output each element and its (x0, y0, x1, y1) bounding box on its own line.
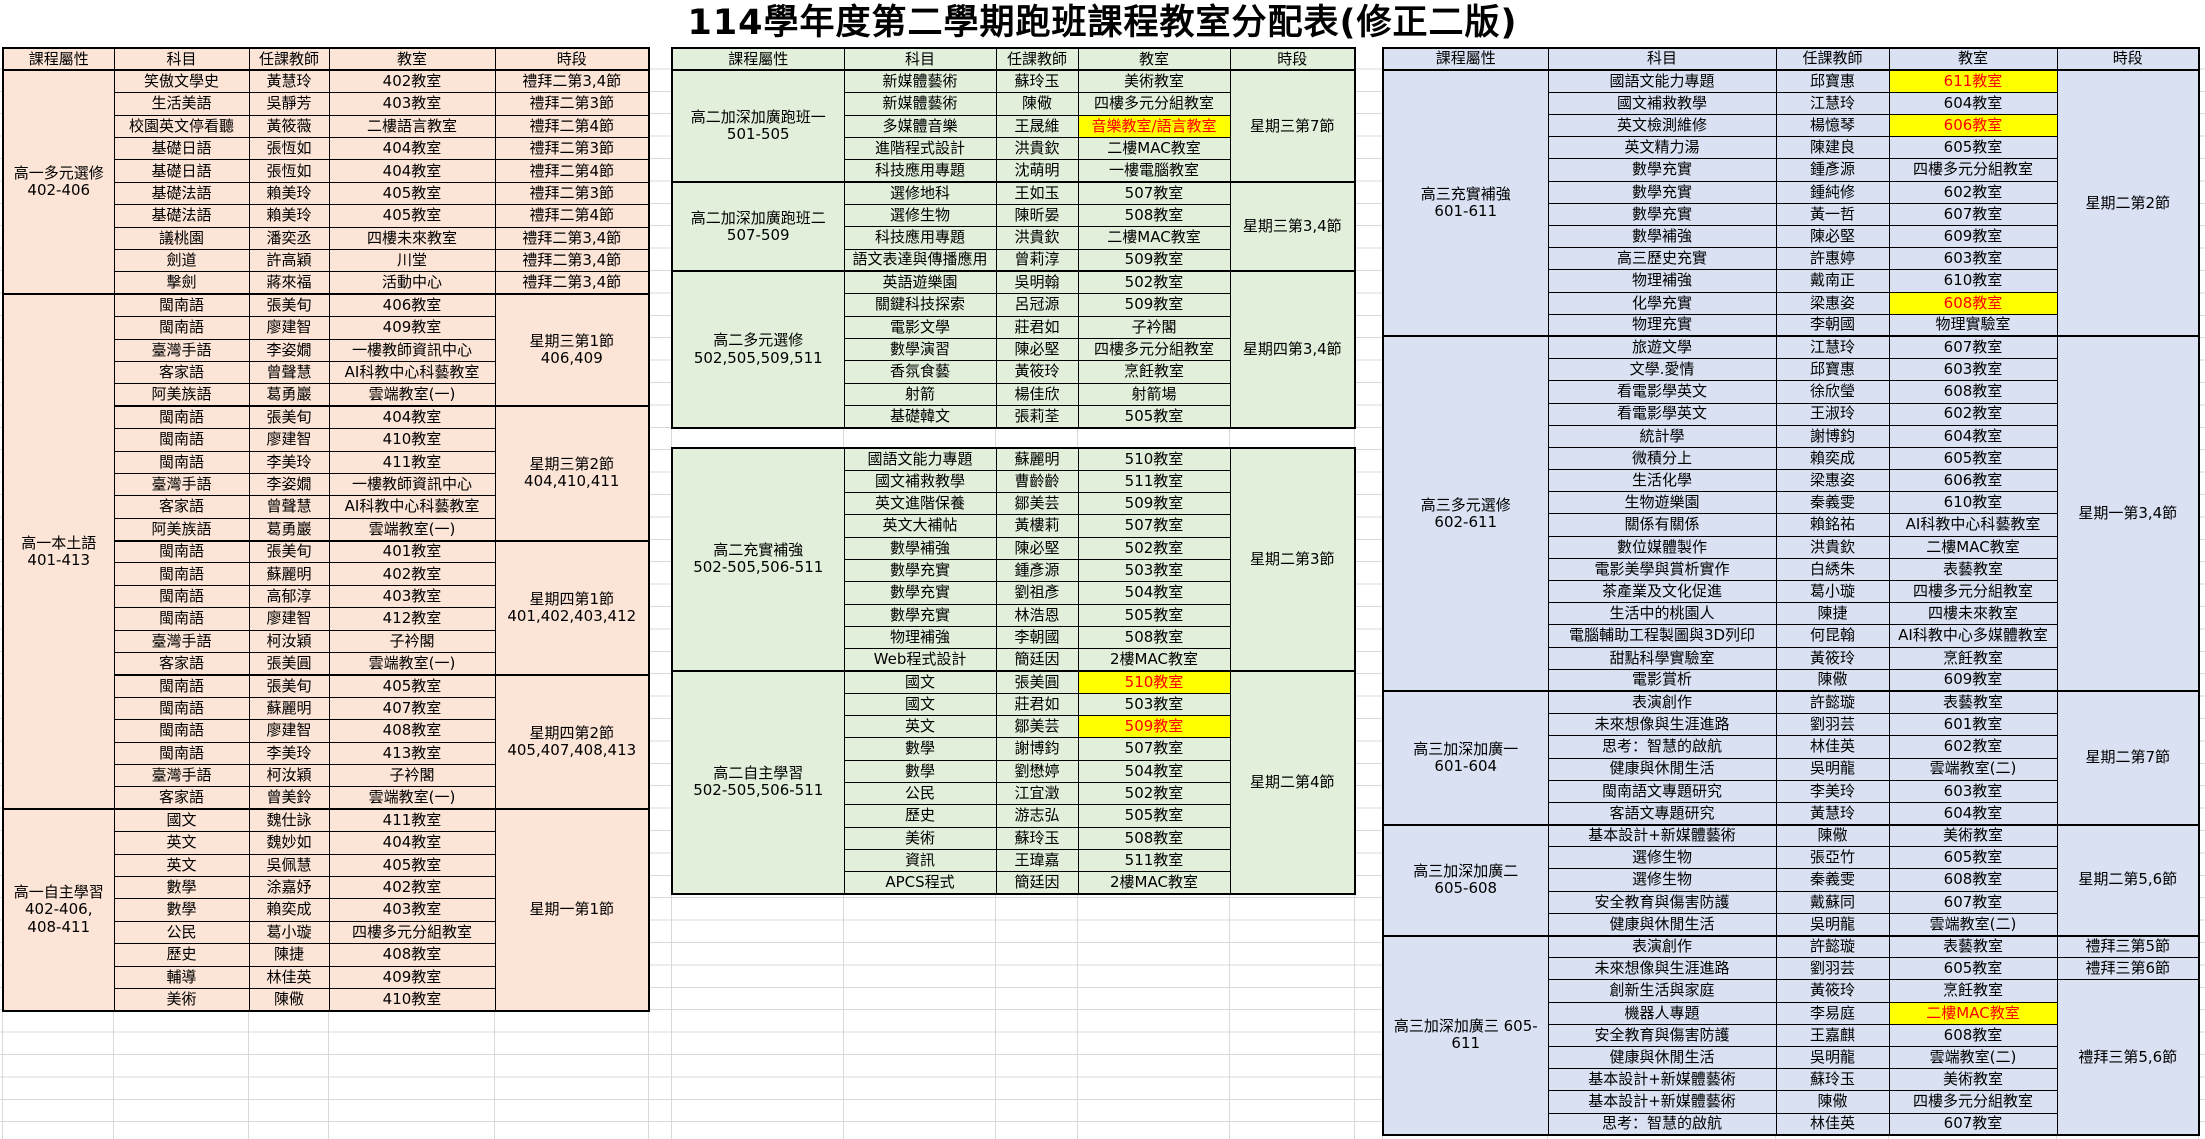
cell-text-line: 星期一第1節 (497, 901, 648, 918)
subject-cell: 數學 (114, 876, 249, 898)
teacher-cell: 曹齡齡 (996, 470, 1078, 492)
room-cell: 509教室 (1078, 493, 1230, 515)
subject-cell: 健康與休閒生活 (1548, 1046, 1776, 1068)
teacher-cell: 戴南正 (1776, 270, 1889, 292)
subject-cell: 香氛食藝 (844, 361, 996, 383)
room-cell: 403教室 (329, 585, 495, 607)
room-cell: 404教室 (329, 160, 495, 182)
room-cell: 604教室 (1889, 92, 2057, 114)
subject-cell: 校園英文停看聽 (114, 115, 249, 137)
teacher-cell: 黃筱玲 (1776, 647, 1889, 669)
cell-text-line: 高二自主學習 (674, 765, 843, 782)
grade1-course-table-section: 課程屬性科目任課教師教室時段高一多元選修402-406笑傲文學史黃慧玲402教室… (2, 47, 650, 1012)
cell-text-line: 星期二第3節 (1232, 551, 1354, 568)
subject-cell: 數學充實 (844, 582, 996, 604)
room-cell: 607教室 (1889, 891, 2057, 913)
room-cell: 607教室 (1889, 203, 2057, 225)
cell-text-line: 601-604 (1385, 758, 1547, 775)
group-label-cell: 高一本土語401-413 (3, 294, 114, 809)
room-cell: 一樓電腦教室 (1078, 160, 1230, 182)
room-cell: 411教室 (329, 451, 495, 473)
subject-cell: 臺灣手語 (114, 765, 249, 787)
subject-cell: 國文 (844, 693, 996, 715)
teacher-cell: 林浩恩 (996, 604, 1078, 626)
room-cell: 608教室 (1889, 381, 2057, 403)
teacher-cell: 張美圓 (249, 653, 329, 675)
teacher-cell: 鄒美芸 (996, 716, 1078, 738)
room-cell: 610教室 (1889, 270, 2057, 292)
subject-cell: 射箭 (844, 383, 996, 405)
subject-cell: 思考：智慧的啟航 (1548, 736, 1776, 758)
subject-cell: 旅遊文學 (1548, 336, 1776, 358)
teacher-cell: 王嘉麒 (1776, 1024, 1889, 1046)
subject-cell: 歷史 (844, 805, 996, 827)
column-header: 任課教師 (249, 48, 329, 70)
cell-text-line: 高二加深加廣跑班二 (674, 210, 843, 227)
teacher-cell: 張美圓 (996, 671, 1078, 693)
grade2b-table: 高二充實補強502-505,506-511國語文能力專題蘇麗明510教室星期二第… (671, 447, 1356, 895)
room-cell: 611教室 (1889, 70, 2057, 92)
room-cell: 608教室 (1889, 1024, 2057, 1046)
time-slot-cell: 禮拜二第3節 (495, 138, 649, 160)
column-header: 科目 (1548, 48, 1776, 70)
room-cell: 美術教室 (1078, 70, 1230, 92)
room-cell: 404教室 (329, 832, 495, 854)
room-cell: 402教室 (329, 563, 495, 585)
room-cell: 510教室 (1078, 671, 1230, 693)
subject-cell: 新媒體藝術 (844, 93, 996, 115)
subject-cell: 基礎韓文 (844, 406, 996, 428)
subject-cell: 數學 (844, 760, 996, 782)
column-header: 教室 (329, 48, 495, 70)
time-slot-cell: 禮拜二第3,4節 (495, 250, 649, 272)
teacher-cell: 江慧玲 (1776, 336, 1889, 358)
room-cell: 602教室 (1889, 403, 2057, 425)
room-cell: 507教室 (1078, 738, 1230, 760)
cell-text-line: 高三多元選修 (1385, 497, 1547, 514)
subject-cell: 數學補強 (844, 537, 996, 559)
teacher-cell: 廖建智 (249, 720, 329, 742)
time-slot-cell: 禮拜二第3節 (495, 182, 649, 204)
grade3-table: 課程屬性科目任課教師教室時段高三充實補強601-611國語文能力專題邱寶惠611… (1382, 47, 2200, 1136)
time-slot-cell: 禮拜二第4節 (495, 115, 649, 137)
teacher-cell: 廖建智 (249, 429, 329, 451)
teacher-cell: 秦義雯 (1776, 492, 1889, 514)
time-slot-cell: 星期二第2節 (2057, 70, 2199, 336)
cell-text-line: 高一自主學習 (5, 884, 113, 901)
teacher-cell: 陳昕晏 (996, 204, 1078, 226)
subject-cell: 表演創作 (1548, 691, 1776, 713)
subject-cell: 笑傲文學史 (114, 70, 249, 92)
teacher-cell: 謝博鈞 (1776, 425, 1889, 447)
teacher-cell: 黃筱玲 (996, 361, 1078, 383)
room-cell: AI科教中心多媒體教室 (1889, 625, 2057, 647)
room-cell: 606教室 (1889, 470, 2057, 492)
teacher-cell: 柯汝穎 (249, 765, 329, 787)
time-slot-cell: 星期三第7節 (1230, 70, 1355, 182)
time-slot-cell: 星期三第3,4節 (1230, 182, 1355, 271)
room-cell: 406教室 (329, 294, 495, 316)
subject-cell: 閩南語 (114, 697, 249, 719)
cell-text-line: 高三加深加廣三 605- (1385, 1018, 1547, 1035)
teacher-cell: 李朝國 (996, 626, 1078, 648)
subject-cell: 基礎法語 (114, 182, 249, 204)
time-slot-cell: 禮拜三第6節 (2057, 958, 2199, 980)
subject-cell: 基本設計+新媒體藝術 (1548, 1091, 1776, 1113)
teacher-cell: 林佳英 (249, 966, 329, 988)
cell-text-line: 星期一第3,4節 (2059, 505, 2198, 522)
subject-cell: 選修生物 (844, 204, 996, 226)
subject-cell: 數學補強 (1548, 226, 1776, 248)
room-cell: 603教室 (1889, 780, 2057, 802)
teacher-cell: 曾聲慧 (249, 361, 329, 383)
room-cell: 子衿閣 (329, 765, 495, 787)
cell-text-line: 禮拜二第3節 (497, 95, 648, 112)
subject-cell: 閩南語 (114, 451, 249, 473)
room-cell: 表藝教室 (1889, 558, 2057, 580)
room-cell: 502教室 (1078, 537, 1230, 559)
time-slot-cell: 星期三第1節406,409 (495, 294, 649, 406)
room-cell: 603教室 (1889, 359, 2057, 381)
room-cell: 四樓多元分組教室 (1889, 581, 2057, 603)
time-slot-cell: 星期四第3,4節 (1230, 271, 1355, 427)
subject-cell: 電影文學 (844, 316, 996, 338)
subject-cell: 創新生活與家庭 (1548, 980, 1776, 1002)
column-header: 課程屬性 (672, 48, 844, 70)
teacher-cell: 鍾彥源 (996, 559, 1078, 581)
teacher-cell: 曾美鈴 (249, 787, 329, 809)
teacher-cell: 魏仕詠 (249, 809, 329, 831)
subject-cell: 英文精力湯 (1548, 137, 1776, 159)
teacher-cell: 陳儆 (996, 93, 1078, 115)
teacher-cell: 洪貴欽 (996, 227, 1078, 249)
time-slot-cell: 星期四第1節401,402,403,412 (495, 541, 649, 675)
subject-cell: 臺灣手語 (114, 473, 249, 495)
room-cell: AI科教中心科藝教室 (329, 496, 495, 518)
teacher-cell: 涂嘉妤 (249, 876, 329, 898)
cell-text-line: 401-413 (5, 552, 113, 569)
room-cell: 射箭場 (1078, 383, 1230, 405)
cell-text-line: 星期四第1節 (497, 591, 648, 608)
cell-text-line: 507-509 (674, 227, 843, 244)
column-header: 科目 (844, 48, 996, 70)
teacher-cell: 張美旬 (249, 294, 329, 316)
group-label-cell: 高二加深加廣跑班二507-509 (672, 182, 844, 271)
room-cell: 505教室 (1078, 604, 1230, 626)
room-cell: 烹飪教室 (1889, 647, 2057, 669)
teacher-cell: 張美旬 (249, 541, 329, 563)
room-cell: 405教室 (329, 854, 495, 876)
room-cell: 605教室 (1889, 958, 2057, 980)
group-label-cell: 高二多元選修502,505,509,511 (672, 271, 844, 427)
room-cell: 604教室 (1889, 425, 2057, 447)
column-header: 課程屬性 (3, 48, 114, 70)
teacher-cell: 呂冠源 (996, 294, 1078, 316)
group-label-cell: 高三加深加廣一601-604 (1383, 691, 1548, 824)
teacher-cell: 賴銘祐 (1776, 514, 1889, 536)
room-cell: 602教室 (1889, 181, 2057, 203)
room-cell: 雲端教室(一) (329, 653, 495, 675)
subject-cell: 英文檢測維修 (1548, 115, 1776, 137)
subject-cell: 美術 (844, 827, 996, 849)
page-title: 114學年度第二學期跑班課程教室分配表(修正二版) (0, 1, 2205, 46)
room-cell: 607教室 (1889, 336, 2057, 358)
subject-cell: 閩南語 (114, 406, 249, 428)
teacher-cell: 黃慧玲 (1776, 802, 1889, 824)
time-slot-cell: 禮拜二第3,4節 (495, 70, 649, 92)
room-cell: 508教室 (1078, 204, 1230, 226)
subject-cell: 數學充實 (1548, 159, 1776, 181)
cell-text-line: 高三加深加廣二 (1385, 863, 1547, 880)
subject-cell: 多媒體音樂 (844, 115, 996, 137)
room-cell: AI科教中心科藝教室 (1889, 514, 2057, 536)
room-cell: 507教室 (1078, 182, 1230, 204)
teacher-cell: 王晟維 (996, 115, 1078, 137)
teacher-cell: 簡廷因 (996, 649, 1078, 671)
subject-cell: 國語文能力專題 (844, 448, 996, 470)
teacher-cell: 許懿璇 (1776, 691, 1889, 713)
teacher-cell: 潘奕丞 (249, 227, 329, 249)
subject-cell: 數學充實 (1548, 203, 1776, 225)
room-cell: 603教室 (1889, 248, 2057, 270)
subject-cell: Web程式設計 (844, 649, 996, 671)
teacher-cell: 蘇玲玉 (996, 827, 1078, 849)
subject-cell: 數位媒體製作 (1548, 536, 1776, 558)
cell-text-line: 611 (1385, 1035, 1547, 1052)
time-slot-cell: 星期一第3,4節 (2057, 336, 2199, 691)
room-cell: 508教室 (1078, 827, 1230, 849)
subject-cell: 英文大補帖 (844, 515, 996, 537)
subject-cell: 閩南語文專題研究 (1548, 780, 1776, 802)
column-header: 時段 (1230, 48, 1355, 70)
time-slot-cell: 星期二第7節 (2057, 691, 2199, 824)
teacher-cell: 蘇麗明 (249, 563, 329, 585)
room-cell: 405教室 (329, 205, 495, 227)
room-cell: 602教室 (1889, 736, 2057, 758)
subject-cell: 電腦輔助工程製圖與3D列印 (1548, 625, 1776, 647)
teacher-cell: 江宜澂 (996, 782, 1078, 804)
subject-cell: 化學充實 (1548, 292, 1776, 314)
cell-text-line: 501-505 (674, 126, 843, 143)
teacher-cell: 鍾純修 (1776, 181, 1889, 203)
room-cell: 606教室 (1889, 115, 2057, 137)
subject-cell: 公民 (844, 782, 996, 804)
teacher-cell: 邱寶惠 (1776, 70, 1889, 92)
subject-cell: 國文 (844, 671, 996, 693)
teacher-cell: 陳儆 (249, 988, 329, 1010)
subject-cell: 歷史 (114, 944, 249, 966)
cell-text-line: 星期二第2節 (2059, 195, 2198, 212)
room-cell: 403教室 (329, 93, 495, 115)
subject-cell: 客家語 (114, 496, 249, 518)
room-cell: 605教室 (1889, 137, 2057, 159)
subject-cell: 英文 (114, 854, 249, 876)
teacher-cell: 葛勇巖 (249, 384, 329, 406)
subject-cell: 科技應用專題 (844, 227, 996, 249)
subject-cell: 電影賞析 (1548, 669, 1776, 691)
column-header: 教室 (1078, 48, 1230, 70)
subject-cell: 選修生物 (1548, 847, 1776, 869)
teacher-cell: 張恆如 (249, 138, 329, 160)
room-cell: 雲端教室(一) (329, 787, 495, 809)
subject-cell: 數學充實 (844, 604, 996, 626)
subject-cell: 科技應用專題 (844, 160, 996, 182)
teacher-cell: 陳儆 (1776, 825, 1889, 847)
cell-text-line: 404,410,411 (497, 473, 648, 490)
time-slot-cell: 星期三第2節404,410,411 (495, 406, 649, 540)
room-cell: 607教室 (1889, 1113, 2057, 1135)
room-cell: 511教室 (1078, 470, 1230, 492)
room-cell: 504教室 (1078, 582, 1230, 604)
column-header: 時段 (2057, 48, 2199, 70)
time-slot-cell: 禮拜二第3,4節 (495, 227, 649, 249)
teacher-cell: 賴美玲 (249, 205, 329, 227)
teacher-cell: 陳必堅 (996, 537, 1078, 559)
subject-cell: 數學 (114, 899, 249, 921)
teacher-cell: 謝博鈞 (996, 738, 1078, 760)
teacher-cell: 梁惠姿 (1776, 470, 1889, 492)
subject-cell: 阿美族語 (114, 384, 249, 406)
subject-cell: 美術 (114, 988, 249, 1010)
time-slot-cell: 星期一第1節 (495, 809, 649, 1011)
teacher-cell: 張亞竹 (1776, 847, 1889, 869)
group-label-cell: 高一自主學習402-406,408-411 (3, 809, 114, 1011)
subject-cell: 思考：智慧的啟航 (1548, 1113, 1776, 1135)
teacher-cell: 賴奕成 (1776, 447, 1889, 469)
room-cell: 509教室 (1078, 716, 1230, 738)
teacher-cell: 蘇玲玉 (1776, 1069, 1889, 1091)
room-cell: 511教室 (1078, 849, 1230, 871)
subject-cell: 高三歷史充實 (1548, 248, 1776, 270)
subject-cell: 閩南語 (114, 608, 249, 630)
subject-cell: 英文 (844, 716, 996, 738)
room-cell: 美術教室 (1889, 1069, 2057, 1091)
teacher-cell: 黃筱薇 (249, 115, 329, 137)
room-cell: 雲端教室(一) (329, 518, 495, 540)
group-label-cell: 高三加深加廣三 605-611 (1383, 936, 1548, 1136)
room-cell: 表藝教室 (1889, 691, 2057, 713)
time-slot-cell: 禮拜三第5,6節 (2057, 980, 2199, 1135)
cell-text-line: 星期四第2節 (497, 725, 648, 742)
subject-cell: 微積分上 (1548, 447, 1776, 469)
teacher-cell: 白綉朱 (1776, 558, 1889, 580)
teacher-cell: 秦義雯 (1776, 869, 1889, 891)
subject-cell: 表演創作 (1548, 936, 1776, 958)
teacher-cell: 許惠婷 (1776, 248, 1889, 270)
subject-cell: 客家語 (114, 361, 249, 383)
time-slot-cell: 禮拜三第5節 (2057, 936, 2199, 958)
teacher-cell: 江慧玲 (1776, 92, 1889, 114)
subject-cell: 阿美族語 (114, 518, 249, 540)
subject-cell: 健康與休閒生活 (1548, 758, 1776, 780)
room-cell: 605教室 (1889, 847, 2057, 869)
teacher-cell: 賴奕成 (249, 899, 329, 921)
subject-cell: 基本設計+新媒體藝術 (1548, 825, 1776, 847)
cell-text-line: 高一本土語 (5, 535, 113, 552)
subject-cell: 數學充實 (844, 559, 996, 581)
room-cell: 一樓教師資訊中心 (329, 473, 495, 495)
cell-text-line: 408-411 (5, 919, 113, 936)
room-cell: AI科教中心科藝教室 (329, 361, 495, 383)
column-header: 時段 (495, 48, 649, 70)
group-label-cell: 高一多元選修402-406 (3, 70, 114, 294)
teacher-cell: 曾莉淳 (996, 249, 1078, 271)
subject-cell: 關鍵科技探索 (844, 294, 996, 316)
time-slot-cell: 禮拜二第3,4節 (495, 272, 649, 294)
grade1-table: 課程屬性科目任課教師教室時段高一多元選修402-406笑傲文學史黃慧玲402教室… (2, 47, 650, 1012)
teacher-cell: 吳明龍 (1776, 1046, 1889, 1068)
cell-text-line: 禮拜二第3,4節 (497, 274, 648, 291)
teacher-cell: 梁惠姿 (1776, 292, 1889, 314)
room-cell: 四樓多元分組教室 (329, 921, 495, 943)
teacher-cell: 何昆翰 (1776, 625, 1889, 647)
teacher-cell: 賴美玲 (249, 182, 329, 204)
subject-cell: 英文進階保養 (844, 493, 996, 515)
teacher-cell: 葛小璇 (249, 921, 329, 943)
subject-cell: 基礎日語 (114, 160, 249, 182)
room-cell: 404教室 (329, 138, 495, 160)
teacher-cell: 李姿嫺 (249, 339, 329, 361)
room-cell: 美術教室 (1889, 825, 2057, 847)
room-cell: 610教室 (1889, 492, 2057, 514)
room-cell: 音樂教室/語言教室 (1078, 115, 1230, 137)
subject-cell: 安全教育與傷害防護 (1548, 891, 1776, 913)
subject-cell: 未來想像與生涯進路 (1548, 714, 1776, 736)
subject-cell: 基礎法語 (114, 205, 249, 227)
teacher-cell: 許高穎 (249, 250, 329, 272)
teacher-cell: 林佳英 (1776, 1113, 1889, 1135)
cell-text-line: 禮拜二第3節 (497, 185, 648, 202)
cell-text-line: 禮拜二第3節 (497, 140, 648, 157)
teacher-cell: 劉羽芸 (1776, 714, 1889, 736)
subject-cell: 國文補救教學 (844, 470, 996, 492)
cell-text-line: 星期二第7節 (2059, 749, 2198, 766)
subject-cell: 閩南語 (114, 563, 249, 585)
subject-cell: 物理補強 (844, 626, 996, 648)
subject-cell: 茶產業及文化促進 (1548, 581, 1776, 603)
cell-text-line: 401,402,403,412 (497, 608, 648, 625)
subject-cell: 英語遊樂園 (844, 271, 996, 293)
teacher-cell: 徐欣瑩 (1776, 381, 1889, 403)
room-cell: 503教室 (1078, 693, 1230, 715)
teacher-cell: 魏妙如 (249, 832, 329, 854)
room-cell: 雲端教室(二) (1889, 1046, 2057, 1068)
room-cell: 509教室 (1078, 294, 1230, 316)
room-cell: 雲端教室(一) (329, 384, 495, 406)
cell-text-line: 星期四第3,4節 (1232, 341, 1354, 358)
room-cell: 508教室 (1078, 626, 1230, 648)
subject-cell: 議桃園 (114, 227, 249, 249)
room-cell: 412教室 (329, 608, 495, 630)
cell-text-line: 禮拜三第5節 (2059, 938, 2198, 955)
room-cell: 川堂 (329, 250, 495, 272)
room-cell: 四樓多元分組教室 (1889, 1091, 2057, 1113)
column-header: 任課教師 (996, 48, 1078, 70)
room-cell: 411教室 (329, 809, 495, 831)
teacher-cell: 廖建智 (249, 608, 329, 630)
subject-cell: 生物遊樂園 (1548, 492, 1776, 514)
cell-text-line: 星期三第2節 (497, 456, 648, 473)
room-cell: 402教室 (329, 876, 495, 898)
teacher-cell: 黃一哲 (1776, 203, 1889, 225)
teacher-cell: 陳捷 (1776, 603, 1889, 625)
room-cell: 二樓語言教室 (329, 115, 495, 137)
cell-text-line: 高二多元選修 (674, 332, 843, 349)
teacher-cell: 黃樓莉 (996, 515, 1078, 537)
group-label-cell: 高三多元選修602-611 (1383, 336, 1548, 691)
subject-cell: 國語文能力專題 (1548, 70, 1776, 92)
subject-cell: 未來想像與生涯進路 (1548, 958, 1776, 980)
